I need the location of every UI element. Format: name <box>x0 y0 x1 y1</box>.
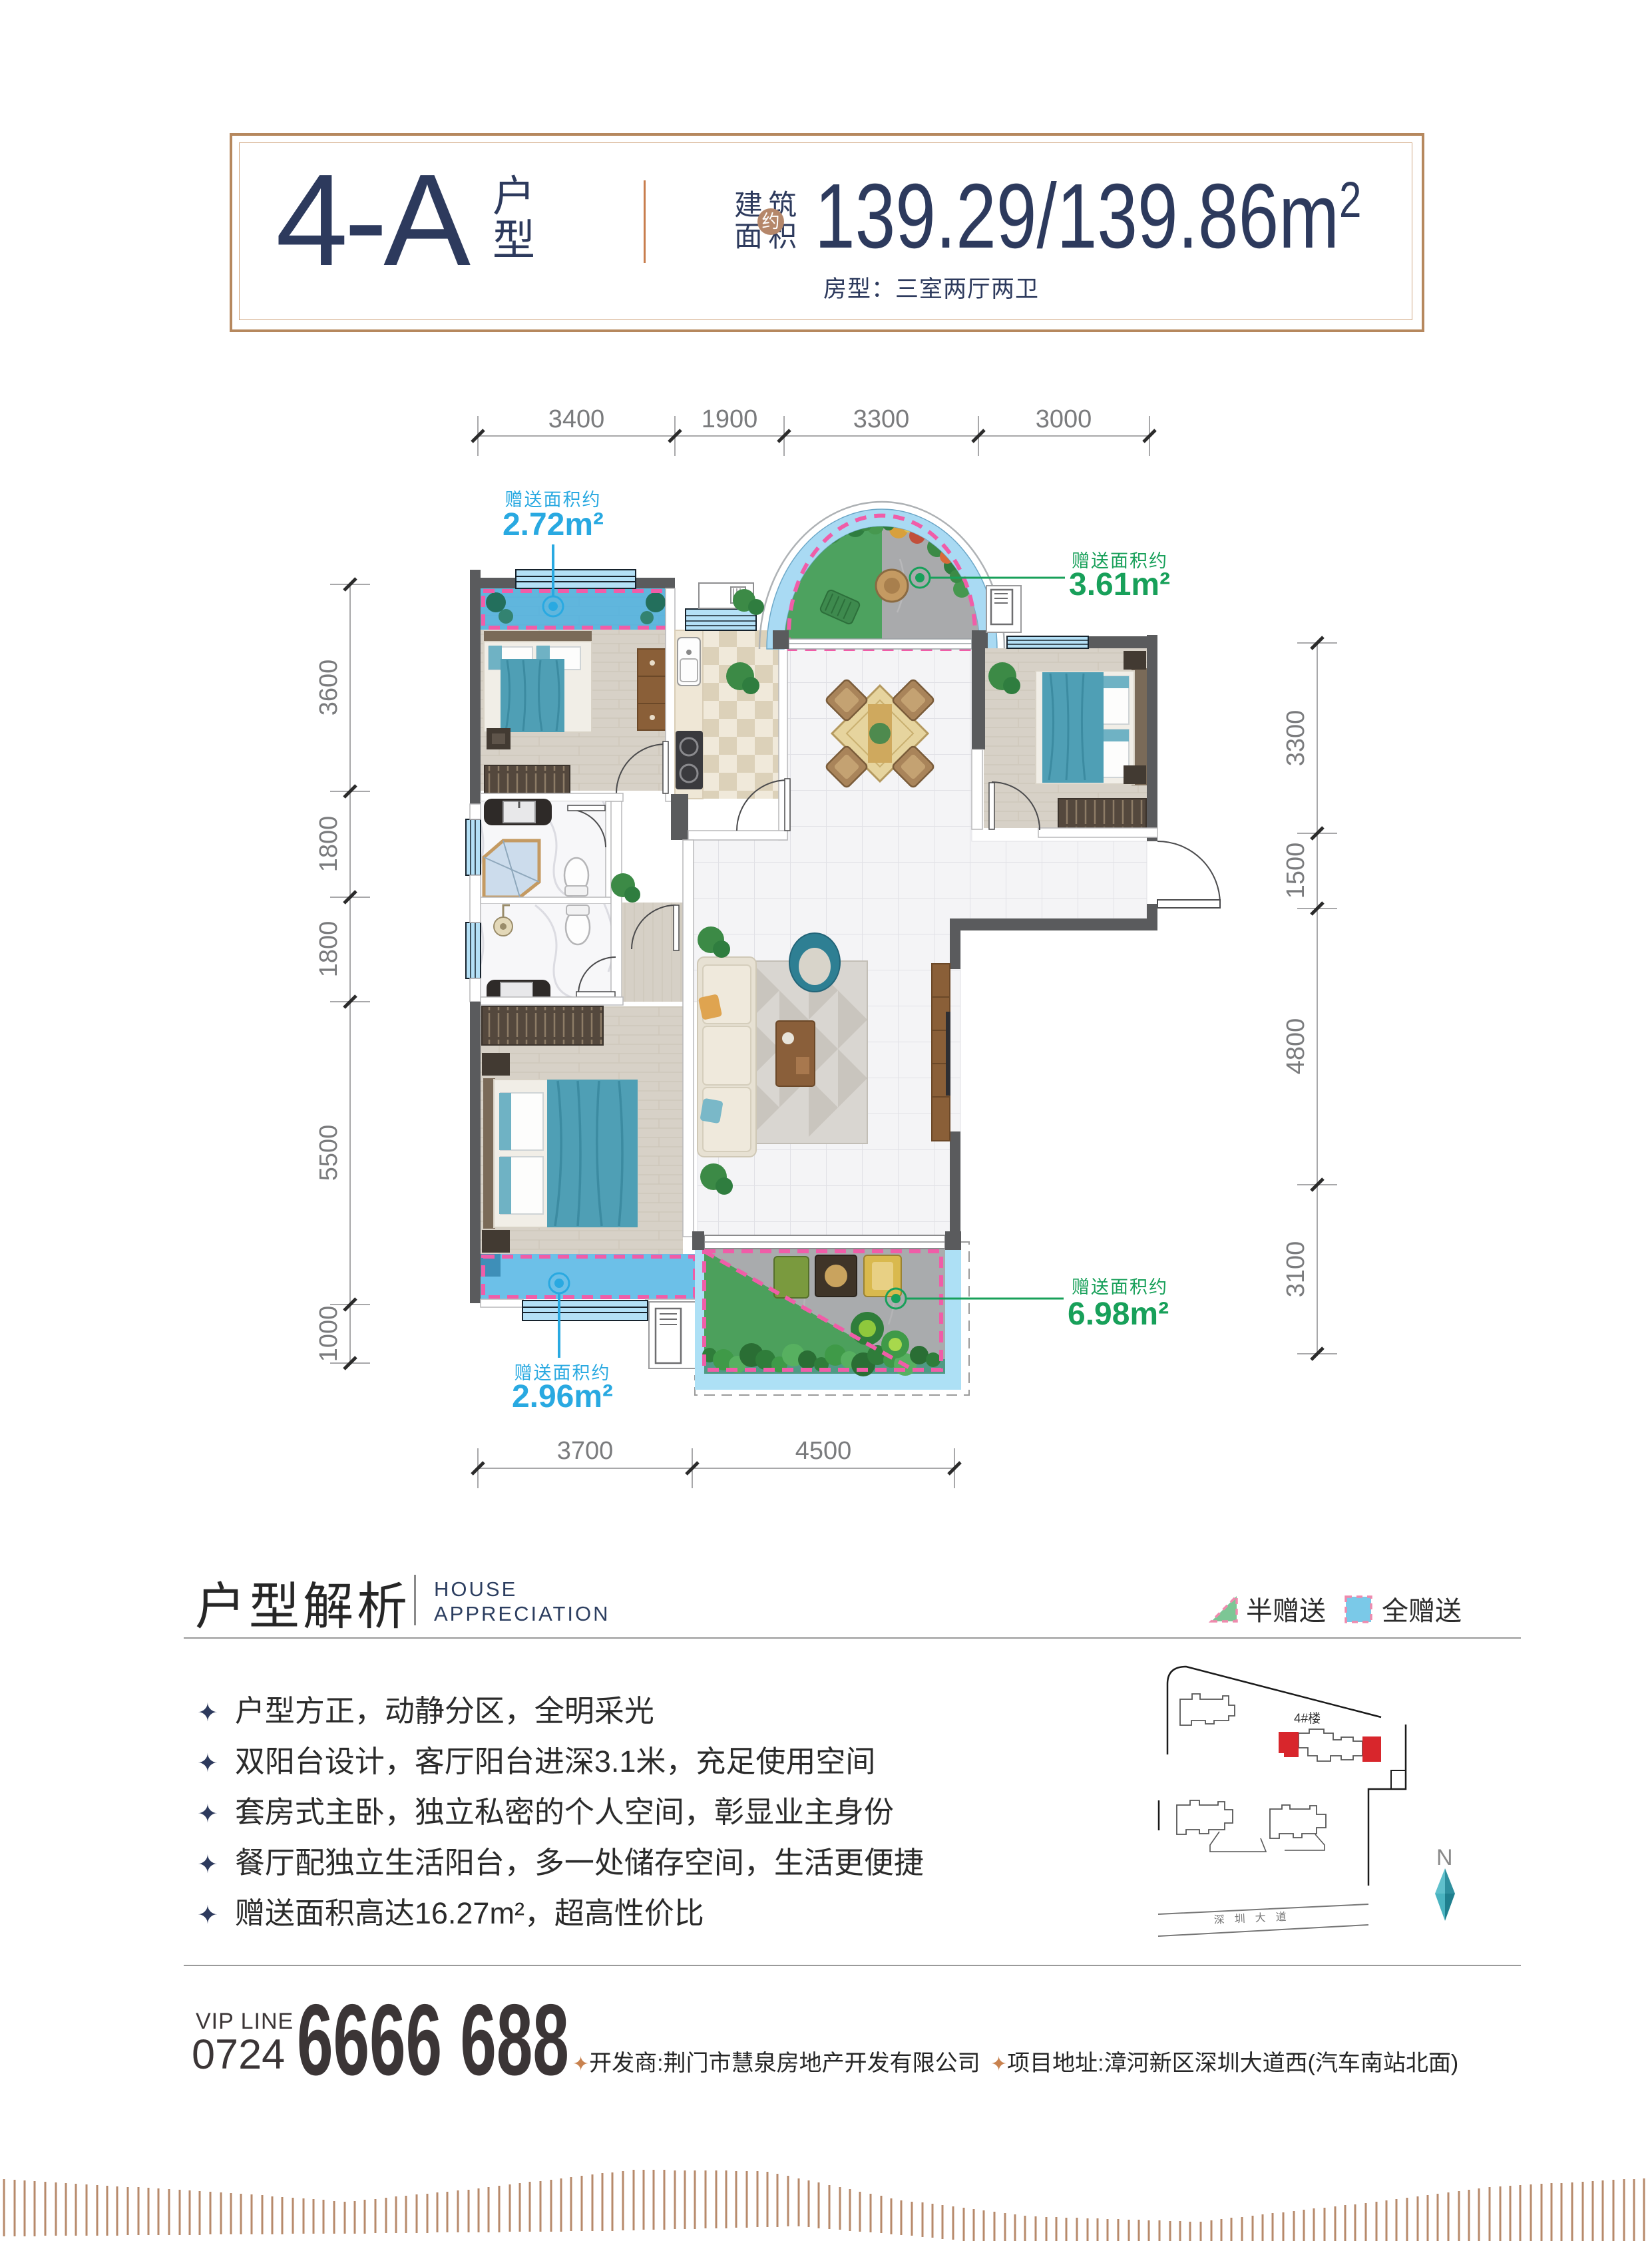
svg-text:1900: 1900 <box>702 405 758 433</box>
svg-text:4500: 4500 <box>795 1437 852 1465</box>
svg-text:全赠送: 全赠送 <box>1382 1597 1462 1626</box>
svg-text:2.96m²: 2.96m² <box>512 1379 613 1414</box>
svg-text:赠送面积约: 赠送面积约 <box>1072 1277 1168 1297</box>
svg-text:深圳大道: 深圳大道 <box>1213 1910 1297 1926</box>
svg-text:3000: 3000 <box>1036 405 1092 433</box>
svg-text:3.61m²: 3.61m² <box>1069 567 1170 602</box>
svg-text:3700: 3700 <box>557 1437 614 1465</box>
svg-text:1000: 1000 <box>315 1306 343 1362</box>
svg-text:N: N <box>1436 1845 1453 1870</box>
svg-text:1800: 1800 <box>315 816 343 873</box>
svg-text:半赠送: 半赠送 <box>1246 1597 1326 1626</box>
svg-text:3400: 3400 <box>548 405 605 433</box>
svg-text:3300: 3300 <box>1282 710 1310 767</box>
svg-text:2.72m²: 2.72m² <box>503 507 604 542</box>
svg-text:3300: 3300 <box>853 405 910 433</box>
svg-text:6.98m²: 6.98m² <box>1068 1297 1169 1332</box>
svg-text:3600: 3600 <box>315 660 343 716</box>
svg-text:1800: 1800 <box>315 921 343 978</box>
svg-text:1500: 1500 <box>1282 843 1310 899</box>
svg-text:4#楼: 4#楼 <box>1294 1711 1321 1726</box>
svg-text:5500: 5500 <box>315 1125 343 1181</box>
svg-text:3100: 3100 <box>1282 1241 1310 1298</box>
svg-text:4800: 4800 <box>1282 1018 1310 1075</box>
